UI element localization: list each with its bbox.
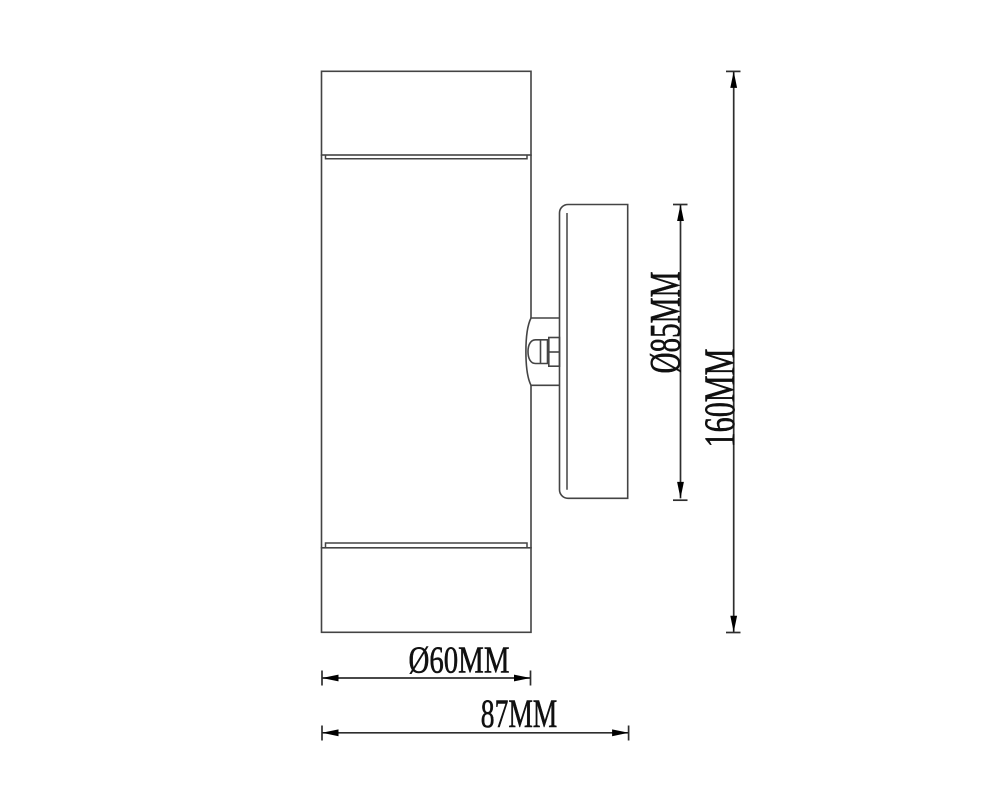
svg-text:Ø60MM: Ø60MM [409, 639, 510, 681]
svg-text:87MM: 87MM [481, 691, 558, 736]
svg-text:160MM: 160MM [697, 349, 744, 448]
svg-text:Ø85MM: Ø85MM [641, 272, 689, 374]
